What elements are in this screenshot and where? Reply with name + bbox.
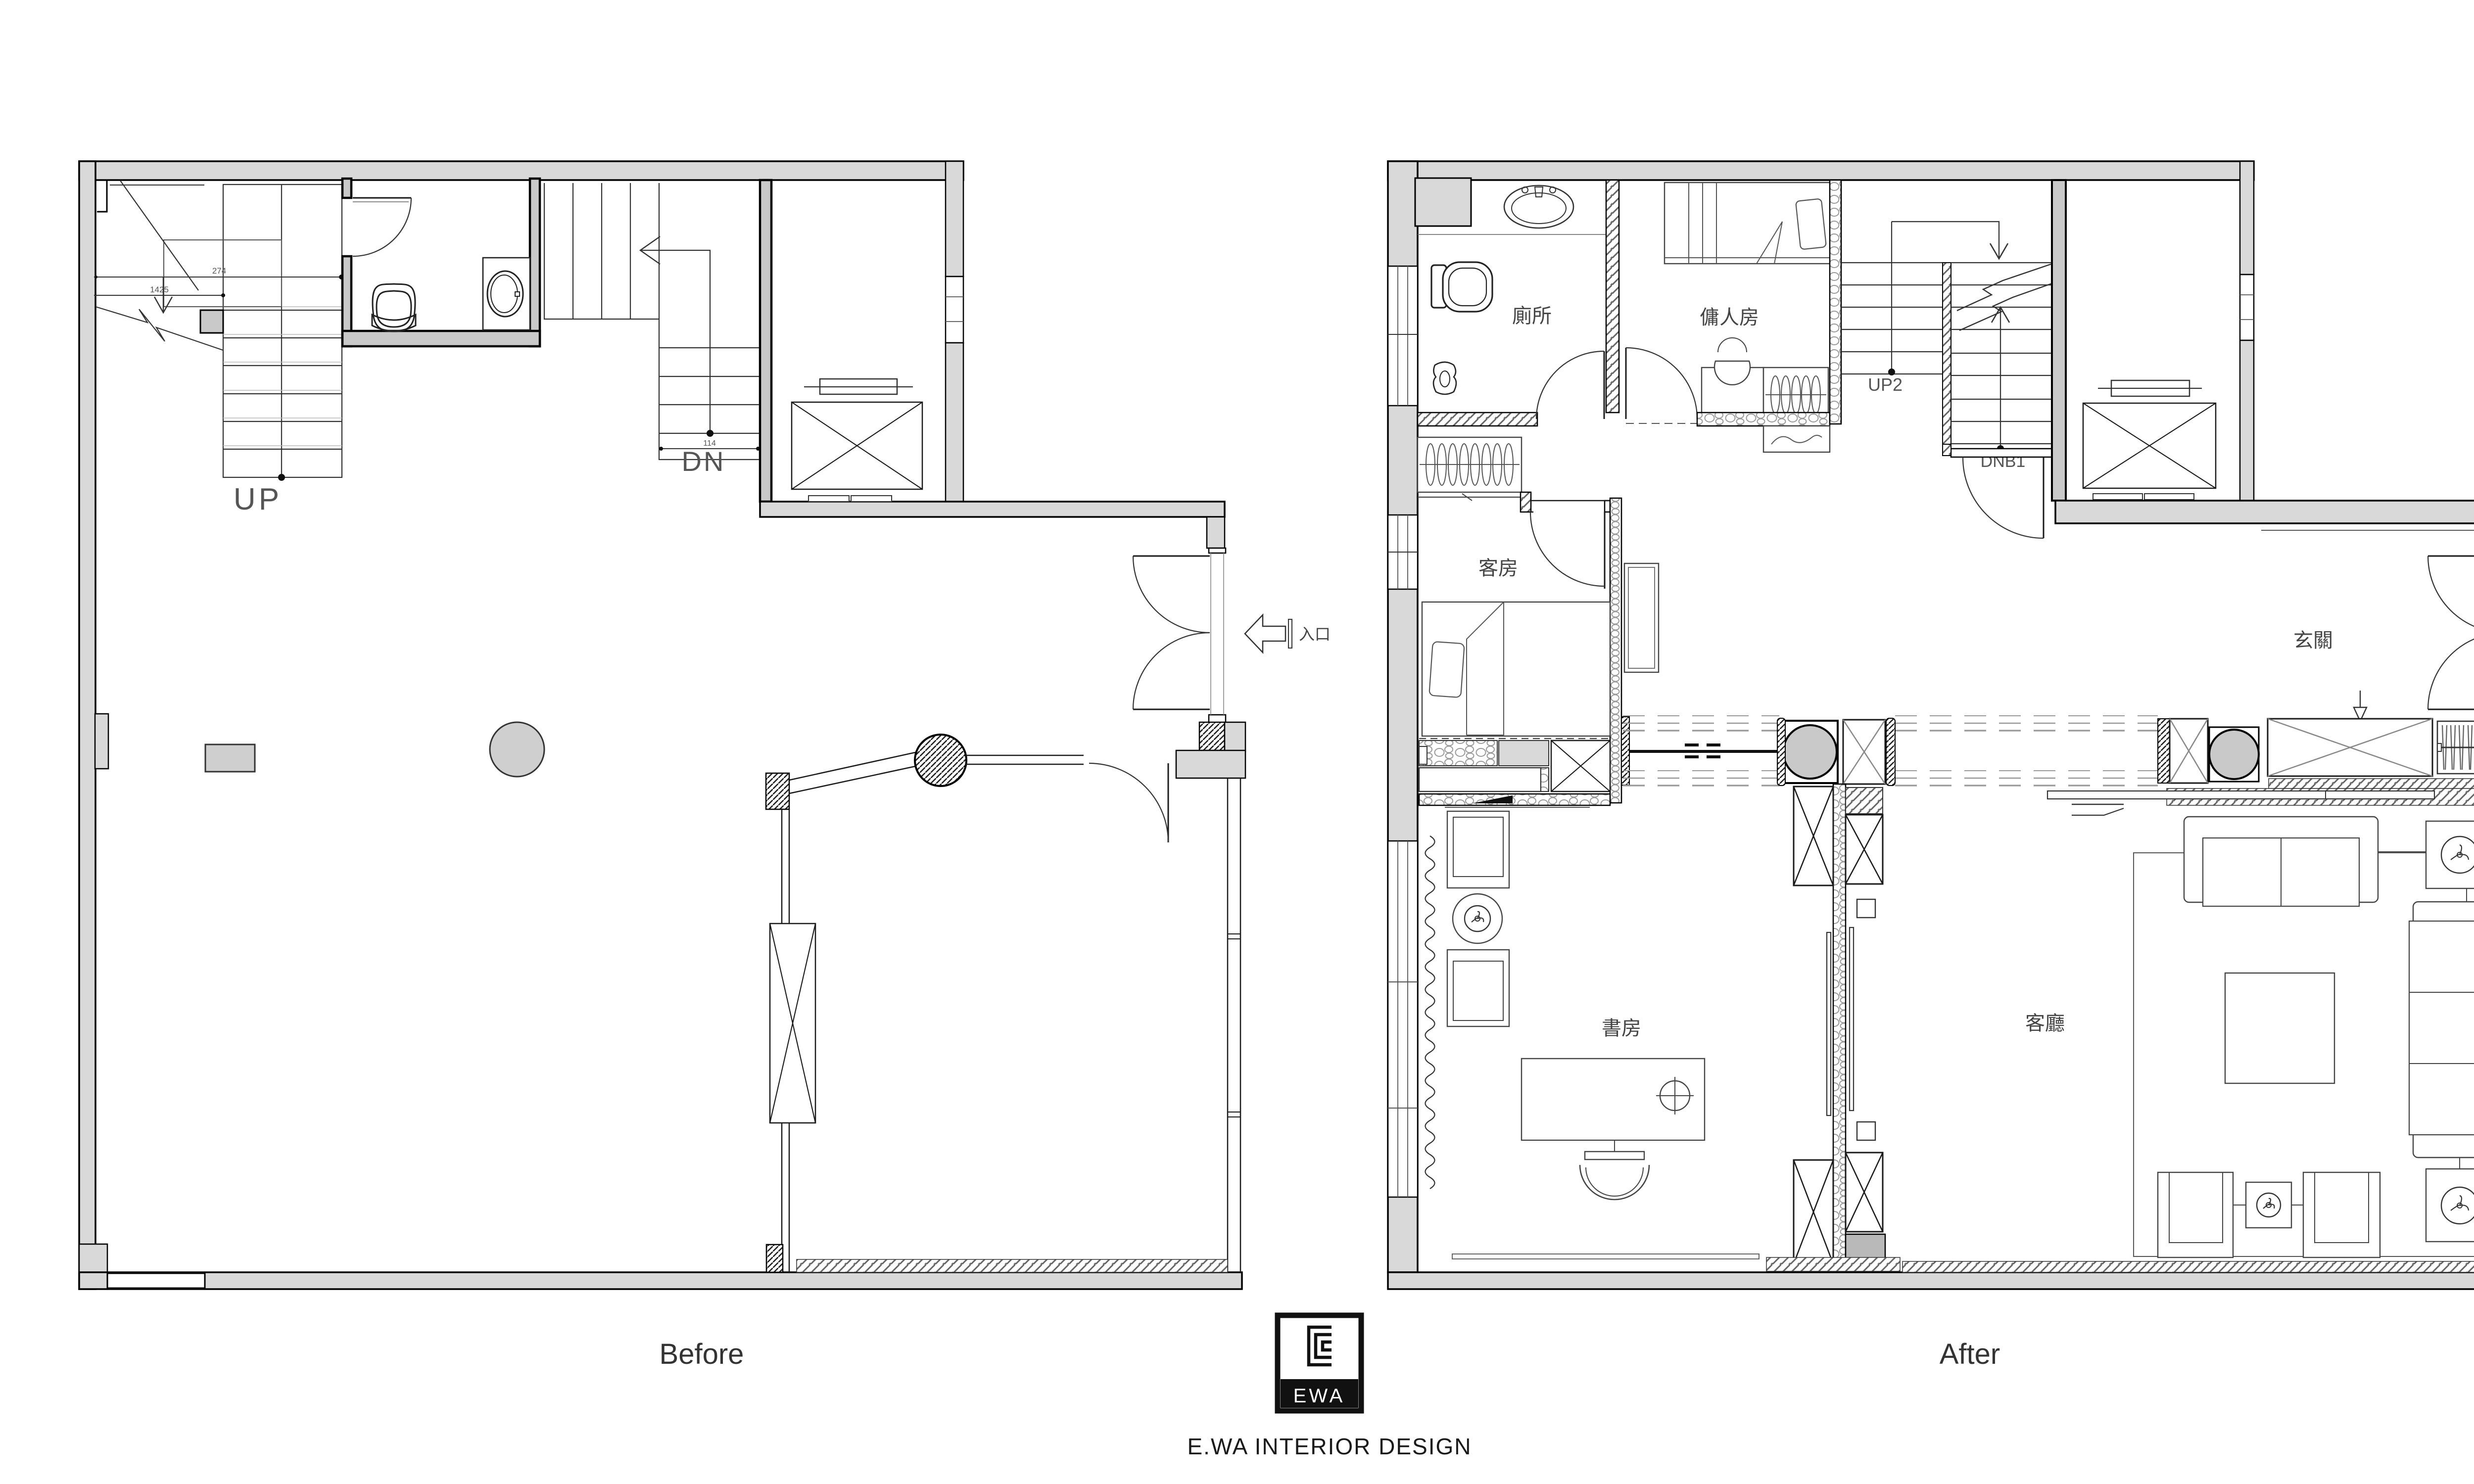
svg-text:Before: Before (660, 1338, 744, 1370)
svg-text:UP: UP (234, 482, 282, 516)
svg-text:客廳: 客廳 (2025, 1013, 2065, 1034)
svg-text:1425: 1425 (150, 285, 169, 294)
svg-text:UP2: UP2 (1868, 374, 1903, 395)
svg-text:入口: 入口 (1299, 625, 1331, 643)
svg-text:玄關: 玄關 (2293, 630, 2333, 651)
svg-text:書房: 書房 (1602, 1018, 1641, 1039)
svg-text:DN: DN (682, 446, 726, 477)
svg-text:廁所: 廁所 (1512, 305, 1552, 327)
svg-text:After: After (1940, 1338, 2000, 1370)
svg-text:E.WA INTERIOR DESIGN: E.WA INTERIOR DESIGN (1187, 1434, 1472, 1459)
svg-text:EWA: EWA (1293, 1385, 1345, 1407)
svg-text:274: 274 (212, 266, 226, 276)
svg-text:客房: 客房 (1478, 557, 1518, 579)
svg-text:傭人房: 傭人房 (1700, 307, 1759, 328)
